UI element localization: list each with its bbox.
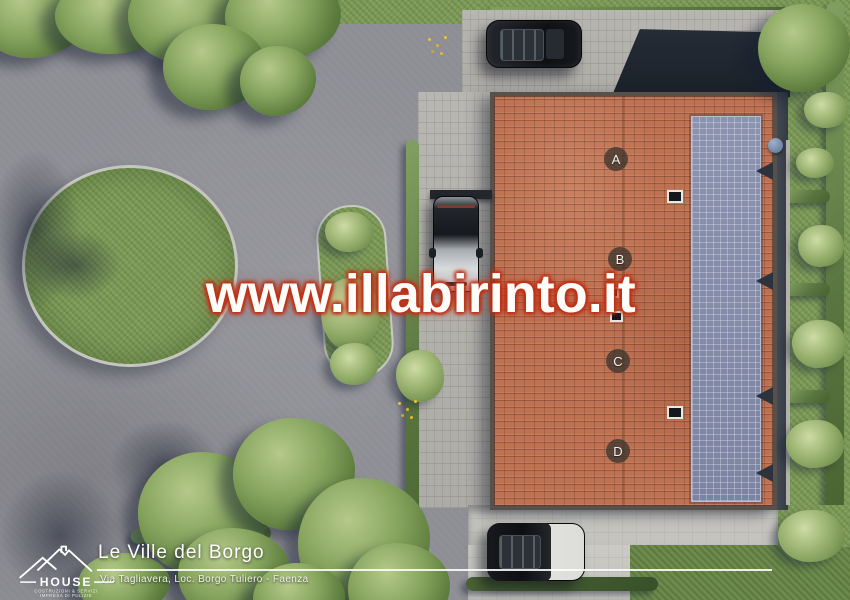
- unit-label: D: [613, 445, 622, 458]
- bush: [325, 212, 373, 252]
- skylight: [667, 406, 683, 419]
- dormer-icon: [756, 464, 773, 482]
- car-mirror-icon: [429, 248, 436, 258]
- garden-divider-hedge-3: [786, 390, 830, 403]
- dormer-icon: [756, 272, 773, 290]
- bush: [396, 350, 444, 402]
- watermark-text: www.illabirinto.it: [206, 263, 636, 325]
- unit-label: C: [613, 355, 622, 368]
- solar-panel-array: [691, 116, 761, 502]
- unit-marker-c: C: [606, 349, 630, 373]
- builder-logo: HOUSE COSTRUZIONI & SERVIZI IMPRESA DI P…: [14, 540, 120, 598]
- garden-divider-hedge-2: [786, 283, 830, 296]
- caption-divider-rule: [97, 569, 772, 571]
- parked-car-north: [486, 20, 582, 68]
- project-subtitle: Via Tagliavera, Loc. Borgo Tuliero - Fae…: [100, 574, 309, 585]
- logo-name: HOUSE: [40, 575, 93, 589]
- site-plan-render: A B C D: [0, 0, 850, 600]
- car-windshield: [546, 29, 564, 59]
- car-sunroof: [499, 535, 541, 569]
- car-roof-trim: [437, 205, 475, 208]
- car-mirror-icon: [476, 248, 483, 258]
- tree-shadow: [30, 230, 120, 300]
- bush: [798, 225, 844, 267]
- logo-line2: IMPRESA DI PULIZIE: [40, 593, 92, 598]
- unit-label: A: [612, 153, 621, 166]
- bush: [330, 343, 378, 385]
- bush: [786, 420, 844, 468]
- bush: [796, 148, 834, 178]
- garden-divider-hedge-1: [786, 190, 830, 203]
- unit-marker-a: A: [604, 147, 628, 171]
- roof-dome-vent: [768, 138, 783, 153]
- bush: [792, 320, 846, 368]
- car-sunroof: [500, 29, 544, 61]
- parked-car-south: [487, 523, 585, 581]
- flower-patch: [398, 402, 401, 405]
- skylight: [667, 190, 683, 203]
- house-roofline-icon: [20, 547, 91, 578]
- project-title: Le Ville del Borgo: [98, 542, 265, 564]
- bush: [804, 92, 848, 128]
- bush: [778, 510, 844, 562]
- unit-marker-d: D: [606, 439, 630, 463]
- flower-patch: [428, 38, 431, 41]
- dormer-icon: [756, 162, 773, 180]
- dormer-icon: [756, 387, 773, 405]
